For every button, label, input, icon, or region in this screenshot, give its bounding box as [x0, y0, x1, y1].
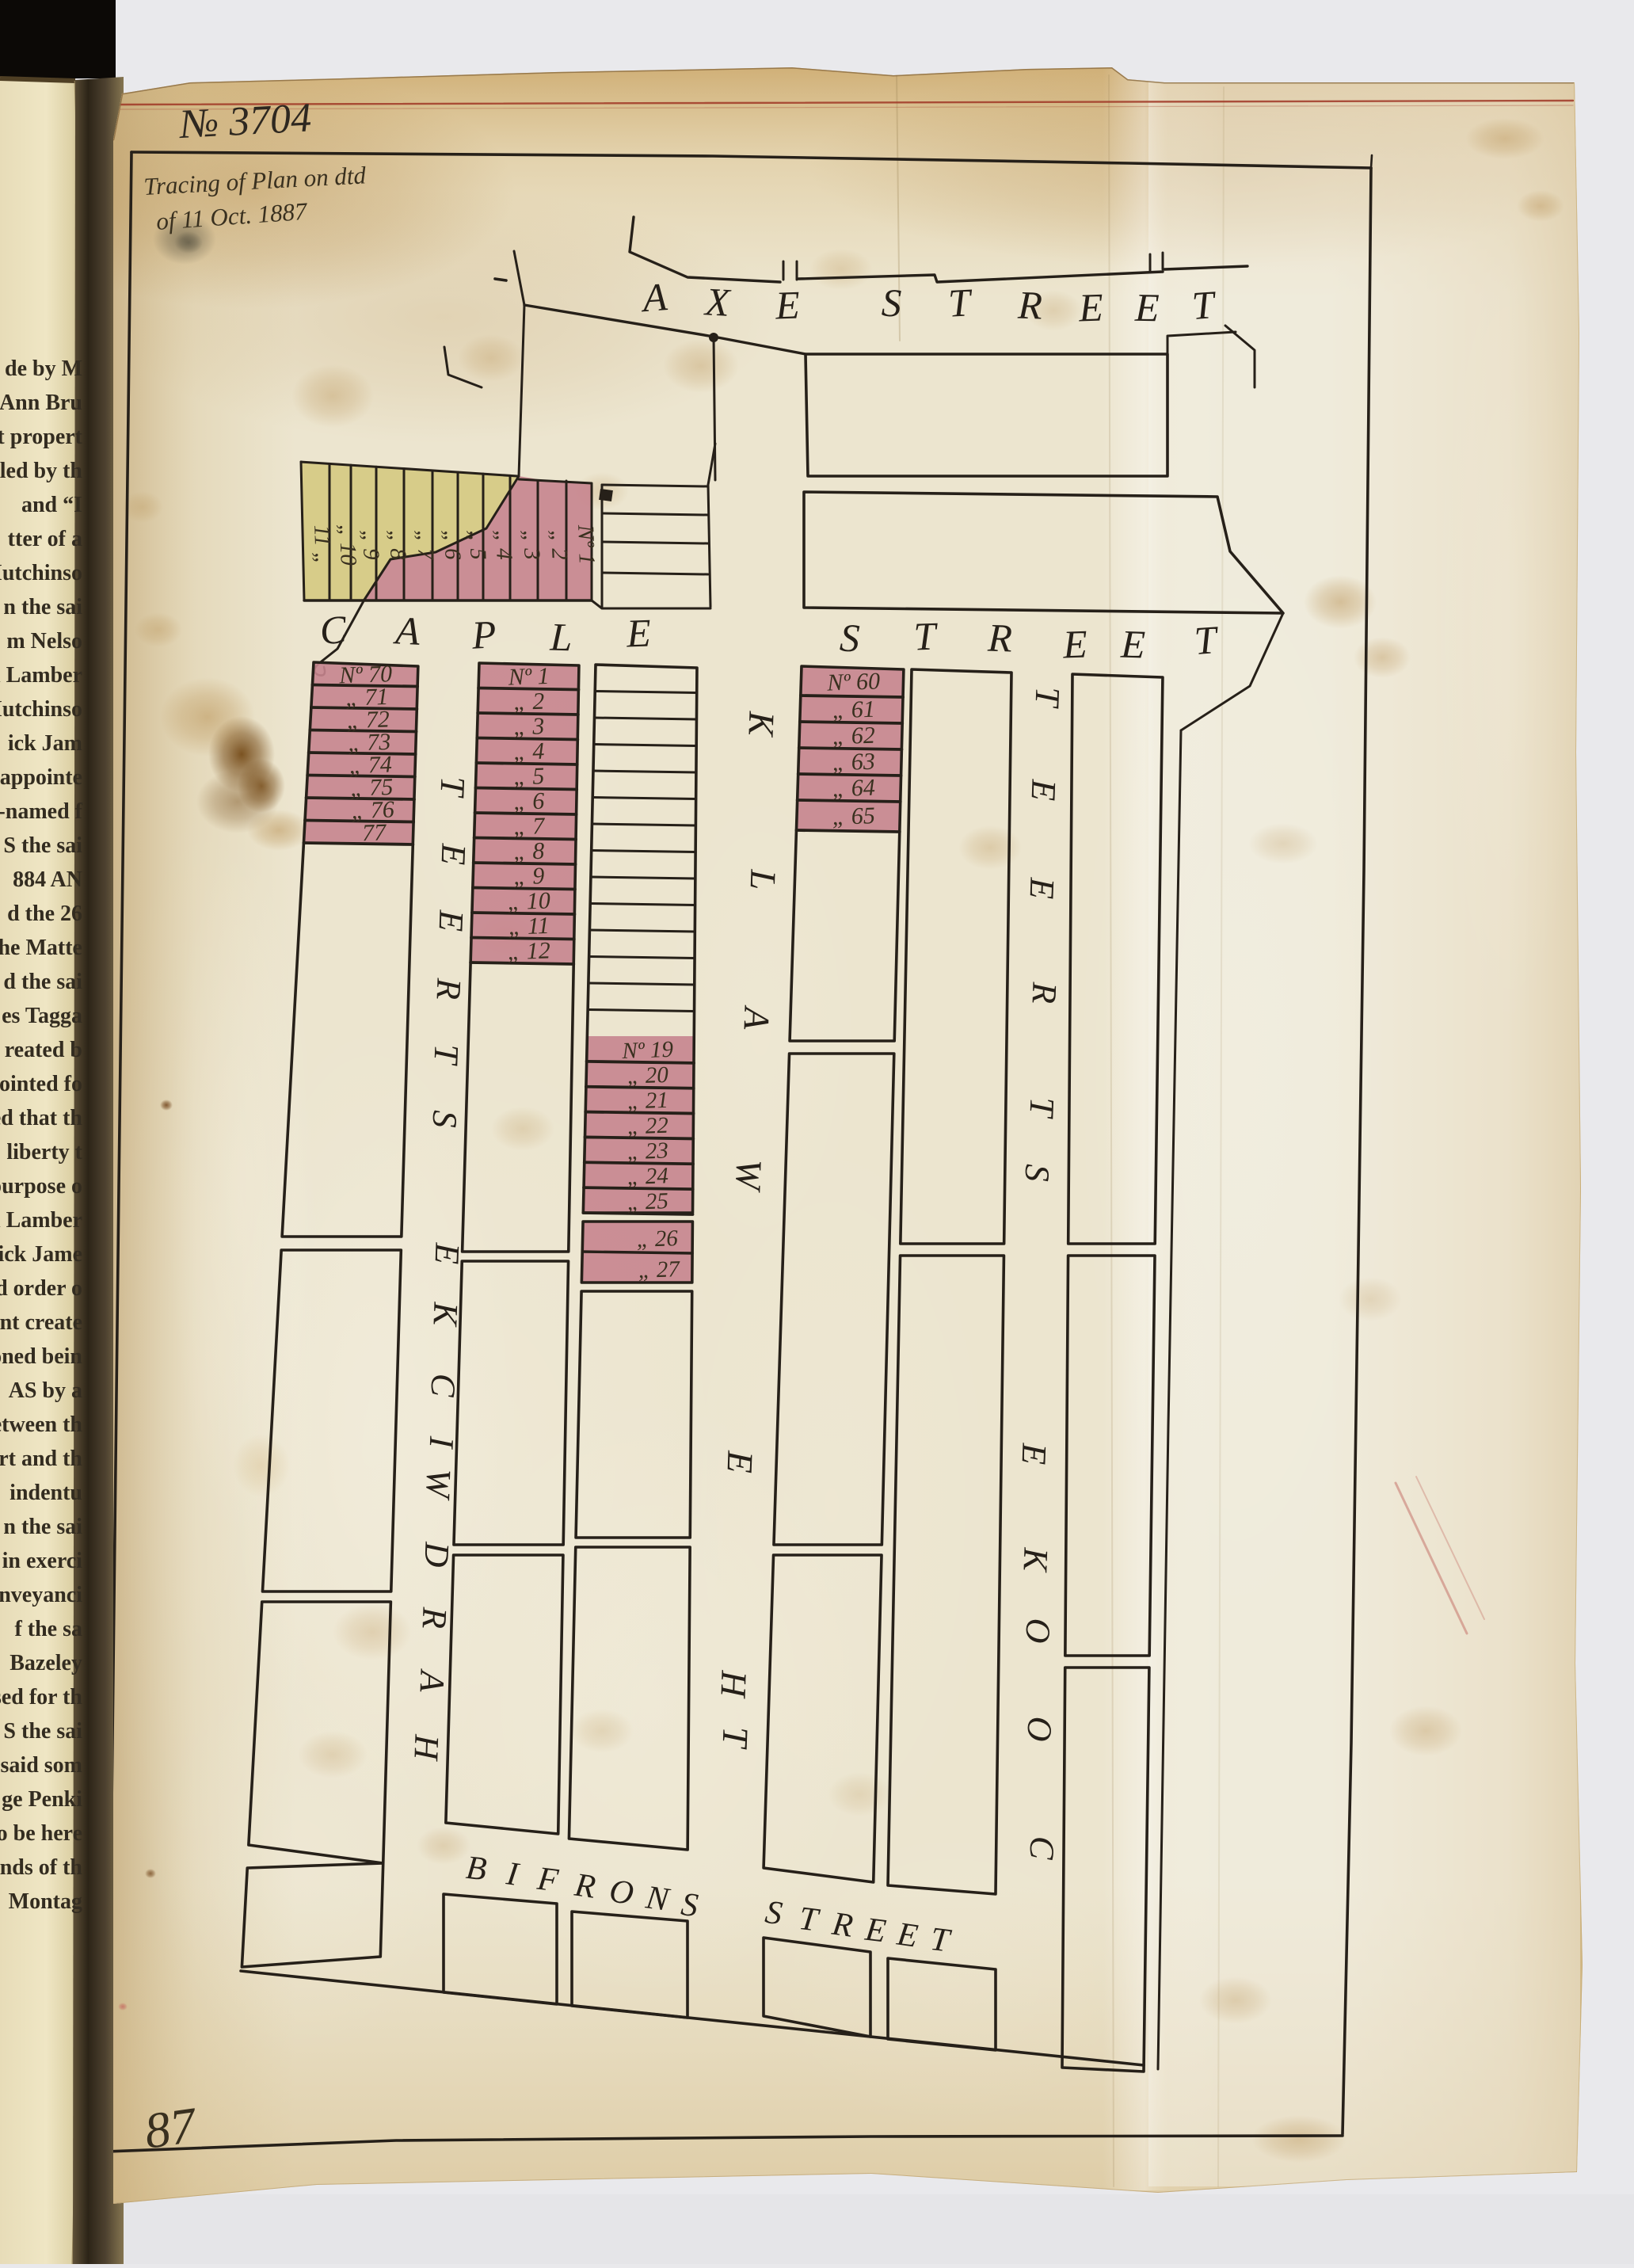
svg-text:K: K: [741, 710, 782, 738]
svg-text:etween th: etween th: [0, 1412, 82, 1437]
svg-text:E: E: [625, 610, 651, 655]
svg-text:nds of th: nds of th: [0, 1855, 82, 1880]
svg-text:„ 10: „ 10: [507, 887, 550, 915]
svg-text:W: W: [728, 1158, 769, 1193]
svg-text:884 AN: 884 AN: [13, 867, 82, 892]
svg-text:„ 24: „ 24: [627, 1163, 668, 1190]
svg-text:„ 2: „ 2: [546, 529, 572, 560]
svg-text:O: O: [1018, 1618, 1057, 1644]
svg-text:„ 65: „ 65: [832, 802, 875, 830]
svg-text:„ 23: „ 23: [627, 1138, 668, 1164]
svg-text:„ 25: „ 25: [627, 1188, 668, 1215]
svg-text:m Nelso: m Nelso: [6, 629, 82, 654]
svg-text:„ 12: „ 12: [507, 937, 550, 965]
svg-text:S the sai: S the sai: [3, 833, 82, 858]
svg-text:indentu: indentu: [10, 1481, 82, 1505]
svg-text:Iutchinso: Iutchinso: [0, 561, 82, 585]
svg-text:R: R: [415, 1606, 455, 1630]
svg-text:de by M: de by M: [5, 356, 82, 381]
svg-text:„ 7: „ 7: [412, 529, 438, 561]
svg-text:n the sai: n the sai: [3, 595, 82, 619]
svg-text:„ 21: „ 21: [627, 1088, 668, 1115]
svg-text:n the sai: n the sai: [3, 1515, 82, 1539]
svg-text:AS by a: AS by a: [9, 1378, 82, 1403]
svg-text:„ 8: „ 8: [513, 838, 545, 865]
svg-text:D: D: [417, 1541, 456, 1569]
svg-text:ick Jame: ick Jame: [0, 1242, 82, 1267]
svg-text:11 „: 11 „: [309, 524, 336, 565]
svg-text:Iutchinso: Iutchinso: [0, 697, 82, 722]
svg-text:A: A: [736, 1004, 777, 1031]
svg-text:o be here: o be here: [0, 1821, 82, 1846]
svg-text:R: R: [1025, 981, 1065, 1004]
svg-text:C: C: [318, 607, 349, 654]
svg-text:tter of a: tter of a: [8, 527, 82, 551]
svg-text:„ 6: „ 6: [439, 529, 465, 560]
svg-text:„ 6: „ 6: [513, 788, 545, 815]
svg-text:„ 26: „ 26: [636, 1225, 679, 1252]
svg-text:S: S: [425, 1110, 465, 1129]
svg-text:„ 27: „ 27: [638, 1256, 681, 1283]
svg-text:R: R: [986, 615, 1012, 660]
svg-text:W: W: [418, 1468, 458, 1501]
svg-text:d Lamber: d Lamber: [0, 1208, 82, 1233]
svg-text:ick Jam: ick Jam: [8, 731, 82, 756]
svg-text:B: B: [464, 1850, 488, 1888]
svg-text:oned bein: oned bein: [0, 1344, 82, 1369]
svg-text:„ 2: „ 2: [513, 688, 545, 715]
svg-text:„ 11: „ 11: [508, 913, 550, 940]
svg-text:№ 3704: № 3704: [177, 95, 313, 147]
svg-text:d the 26: d the 26: [7, 901, 82, 926]
svg-text:d Lamber: d Lamber: [0, 663, 82, 688]
svg-text:E: E: [1024, 778, 1064, 802]
svg-text:sed for th: sed for th: [0, 1685, 82, 1710]
svg-text:K: K: [1015, 1546, 1055, 1574]
svg-text:liberty t: liberty t: [6, 1140, 82, 1164]
svg-text:purpose o: purpose o: [0, 1174, 82, 1199]
svg-text:Bazeley: Bazeley: [10, 1651, 82, 1675]
svg-text:„ 3: „ 3: [518, 529, 544, 560]
svg-text:„ 62: „ 62: [832, 722, 875, 750]
svg-text:„ 64: „ 64: [832, 775, 875, 802]
svg-text:ent create: ent create: [0, 1310, 82, 1335]
svg-text:t propert: t propert: [0, 425, 83, 449]
svg-text:nveyanci: nveyanci: [0, 1583, 82, 1607]
svg-text:E: E: [1077, 284, 1103, 330]
svg-text:A: A: [412, 1668, 451, 1694]
svg-text:E: E: [774, 282, 800, 327]
svg-text:E: E: [1023, 876, 1062, 900]
svg-text:77: 77: [362, 819, 388, 846]
svg-text:d the sai: d the sai: [3, 970, 82, 994]
svg-text:appointe: appointe: [0, 765, 82, 790]
svg-text:in exerci: in exerci: [2, 1549, 83, 1573]
svg-text:O: O: [1019, 1716, 1059, 1742]
svg-text:„ 20: „ 20: [627, 1062, 669, 1089]
svg-text:L: L: [549, 615, 573, 660]
svg-text:rt and th: rt and th: [0, 1447, 82, 1471]
svg-text:E: E: [1015, 1442, 1054, 1466]
svg-text:f the sa: f the sa: [14, 1617, 82, 1641]
svg-text:T: T: [913, 613, 939, 658]
svg-text:R: R: [1016, 282, 1042, 327]
svg-text:ointed fo: ointed fo: [0, 1072, 82, 1096]
svg-text:Nº 1: Nº 1: [573, 524, 600, 565]
svg-text:„ 3: „ 3: [513, 713, 545, 740]
svg-text:reated b: reated b: [5, 1038, 82, 1062]
svg-text:Nº 1: Nº 1: [507, 663, 550, 691]
svg-text:he Matte: he Matte: [0, 936, 82, 960]
svg-text:Nº 60: Nº 60: [826, 668, 881, 696]
svg-text:Nº 19: Nº 19: [621, 1037, 674, 1064]
svg-text:ed that th: ed that th: [0, 1106, 82, 1130]
svg-text:E: E: [1061, 621, 1087, 666]
svg-text:„ 9: „ 9: [513, 863, 545, 890]
svg-text:S: S: [1018, 1164, 1057, 1183]
svg-text:ge Penki: ge Penki: [2, 1787, 82, 1812]
svg-text:„ 9: „ 9: [357, 529, 383, 560]
svg-text:es Tagga: es Tagga: [2, 1004, 82, 1028]
svg-text:E: E: [432, 909, 471, 932]
svg-text:„ 8: „ 8: [384, 529, 410, 560]
svg-text:H: H: [406, 1733, 446, 1763]
svg-text:Ann Bru: Ann Bru: [0, 391, 82, 415]
svg-text:„ 63: „ 63: [832, 749, 875, 776]
svg-text:S the sai: S the sai: [3, 1719, 82, 1744]
svg-text:E: E: [863, 1912, 888, 1950]
svg-text:and “I: and “I: [21, 493, 82, 517]
svg-text:d order o: d order o: [0, 1276, 82, 1301]
svg-text:„ 7: „ 7: [513, 813, 547, 840]
svg-text:E: E: [434, 842, 474, 866]
svg-text:87: 87: [141, 2096, 201, 2159]
svg-text:„ 22: „ 22: [627, 1113, 668, 1140]
svg-text:„ 5: „ 5: [464, 529, 490, 560]
svg-text:L: L: [743, 868, 784, 890]
svg-text:P: P: [470, 612, 497, 658]
svg-text:„ 4: „ 4: [490, 529, 516, 560]
svg-text:R: R: [429, 977, 469, 1001]
svg-text:-named f: -named f: [0, 799, 83, 824]
svg-text:tled by th: tled by th: [0, 459, 82, 483]
svg-text:Montag: Montag: [9, 1889, 82, 1914]
svg-text:E: E: [720, 1450, 761, 1474]
svg-text:A: A: [639, 274, 669, 320]
svg-text:S: S: [881, 280, 902, 326]
svg-text:„ 61: „ 61: [832, 696, 875, 724]
svg-text:O: O: [608, 1873, 636, 1912]
svg-text:H: H: [713, 1669, 754, 1700]
svg-text:resaid som: resaid som: [0, 1753, 82, 1778]
svg-text:„ 4: „ 4: [513, 738, 545, 765]
svg-text:S: S: [839, 615, 861, 660]
svg-text:E: E: [1134, 285, 1160, 330]
svg-text:„ 5: „ 5: [513, 763, 545, 790]
svg-text:C: C: [1022, 1835, 1061, 1861]
svg-text:A: A: [392, 608, 421, 654]
svg-text:X: X: [703, 279, 733, 325]
svg-text:„ 10: „ 10: [334, 524, 361, 566]
svg-text:E: E: [1119, 621, 1145, 666]
